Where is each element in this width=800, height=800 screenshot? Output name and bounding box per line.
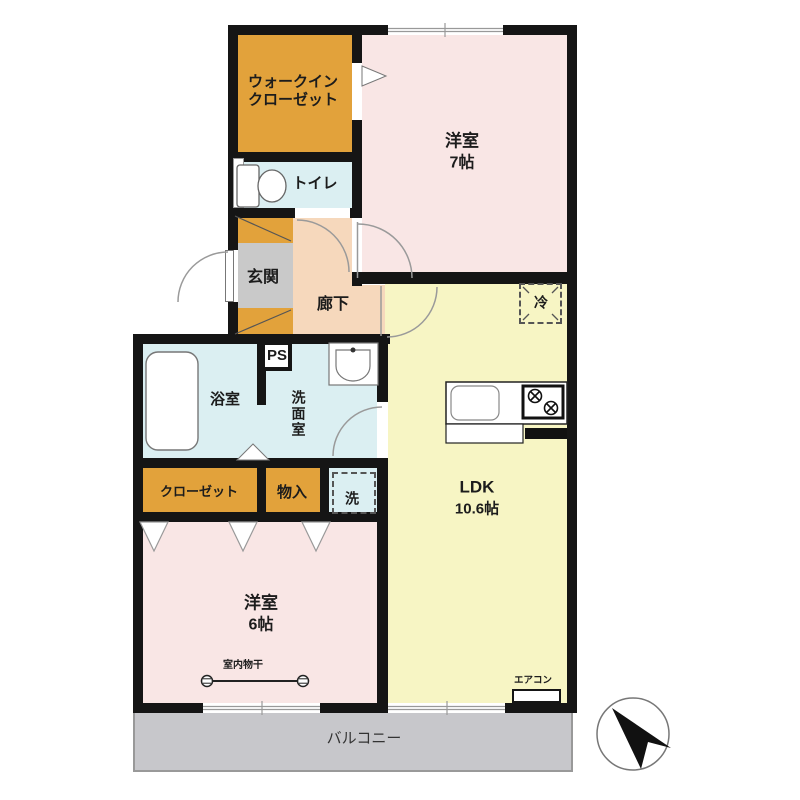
label-balcony: バルコニー [327, 730, 402, 748]
label-indoor-drying: 室内物干 [223, 660, 263, 672]
wall-right [567, 25, 577, 713]
label-walk-in-closet: ウォークイン クローゼット [248, 74, 338, 111]
wall-storage-washer-divider [320, 458, 329, 522]
room-bathroom [138, 341, 265, 463]
door-gap-toilet [295, 208, 350, 218]
door-gap-bedroom7 [352, 218, 362, 272]
door-gap-washroom [377, 402, 388, 458]
window-bedroom6-balcony [203, 703, 320, 713]
aircon-box [512, 689, 561, 703]
wall-left-lower [133, 334, 143, 713]
wall-ldk-west [377, 336, 388, 713]
entrance-door-arc [178, 252, 228, 302]
label-aircon: エアコン [514, 675, 552, 687]
room-hallway-upper [293, 213, 358, 341]
door-gap-wic [352, 63, 362, 120]
room-hallway-lower [358, 285, 385, 341]
entrance-door-leaf [225, 250, 234, 302]
label-entrance: 玄関 [247, 268, 279, 288]
toilet-side-panel [233, 158, 244, 208]
label-hallway: 廊下 [317, 295, 349, 315]
label-ldk: LDK 10.6帖 [455, 477, 499, 518]
wall-bottom [133, 703, 577, 713]
compass-north-icon [597, 698, 671, 770]
label-bathroom: 浴室 [210, 391, 240, 409]
label-washroom: 洗面室 [289, 390, 306, 438]
label-bedroom6: 洋室 6帖 [244, 593, 278, 634]
label-toilet: トイレ [292, 175, 337, 193]
label-storage: 物入 [277, 484, 307, 502]
wall-bathroom-bottom [133, 458, 265, 468]
window-bedroom7-top [388, 25, 503, 35]
label-washer: 洗 [345, 490, 359, 507]
wall-closet-storage-divider [257, 458, 266, 522]
label-pipe-space: PS [267, 347, 287, 365]
floor-plan: ウォークイン クローゼット 洋室 7帖 トイレ 玄関 廊下 PS 冷 浴室 洗面… [0, 0, 800, 800]
label-closet: クローゼット [160, 484, 238, 500]
wall-wic-bottom [228, 152, 362, 162]
label-bedroom7: 洋室 7帖 [445, 131, 479, 172]
entrance-cabinet-bottom [233, 308, 293, 336]
label-fridge: 冷 [534, 294, 548, 311]
window-ldk-balcony [388, 703, 505, 713]
